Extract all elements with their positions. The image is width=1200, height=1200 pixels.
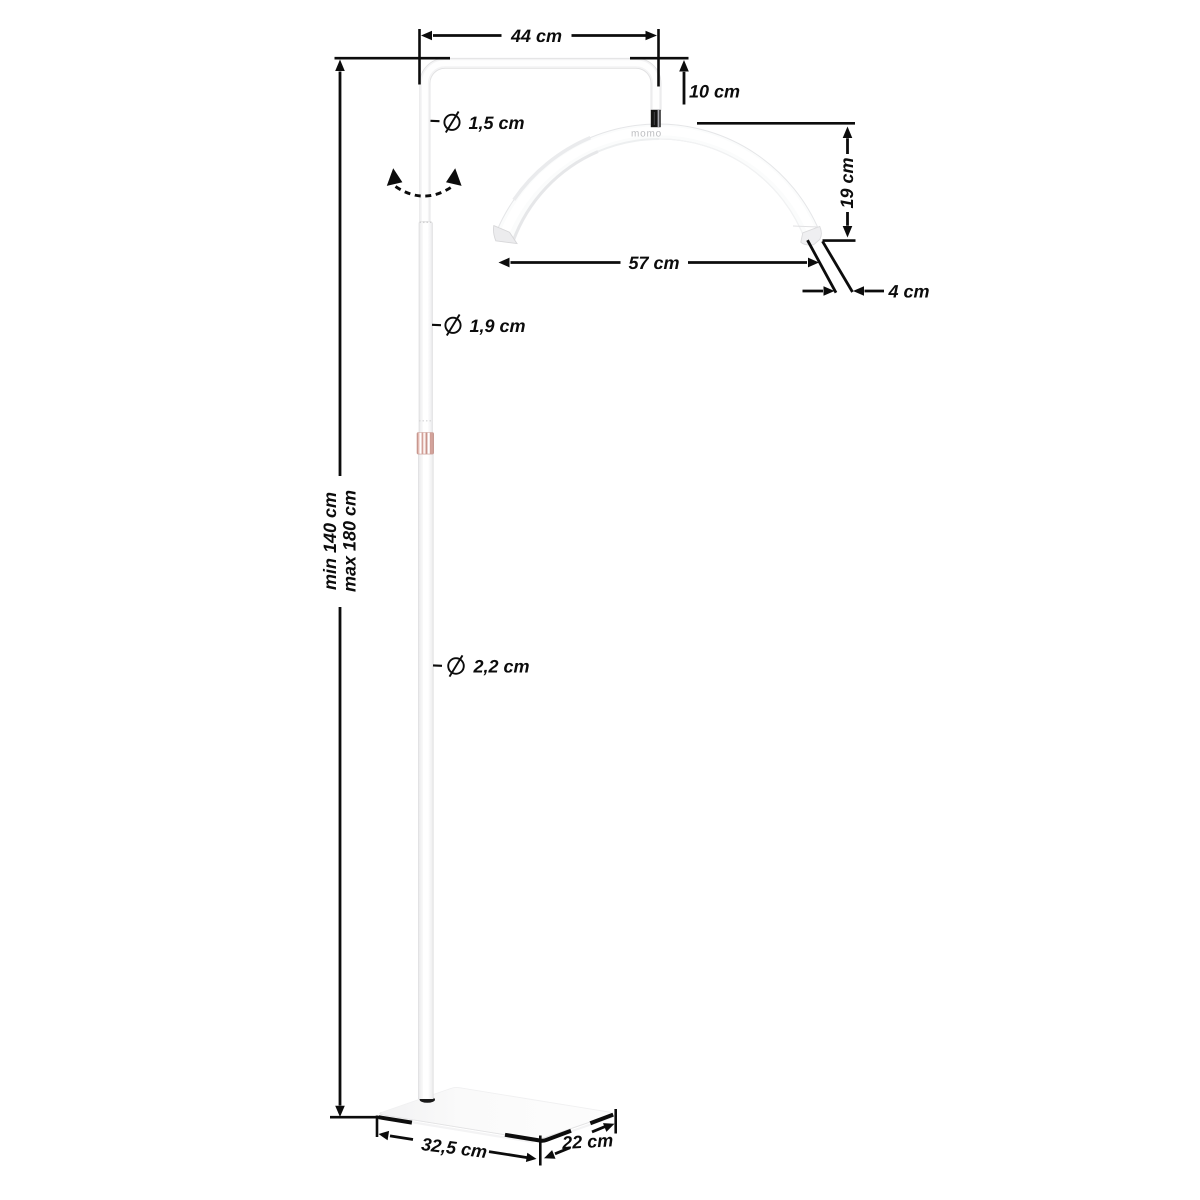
svg-text:4 cm: 4 cm	[888, 281, 930, 301]
svg-text:max 180 cm: max 180 cm	[340, 490, 360, 592]
svg-text:44 cm: 44 cm	[510, 26, 562, 46]
svg-text:min 140 cm: min 140 cm	[320, 492, 340, 590]
svg-text:22 cm: 22 cm	[561, 1130, 614, 1153]
svg-text:1,9 cm: 1,9 cm	[470, 316, 526, 336]
svg-text:momo: momo	[631, 128, 662, 139]
svg-text:57 cm: 57 cm	[628, 253, 679, 273]
svg-text:10 cm: 10 cm	[689, 82, 740, 102]
svg-text:1,5 cm: 1,5 cm	[469, 113, 525, 133]
svg-text:19 cm: 19 cm	[837, 157, 857, 208]
svg-text:2,2 cm: 2,2 cm	[473, 657, 530, 677]
